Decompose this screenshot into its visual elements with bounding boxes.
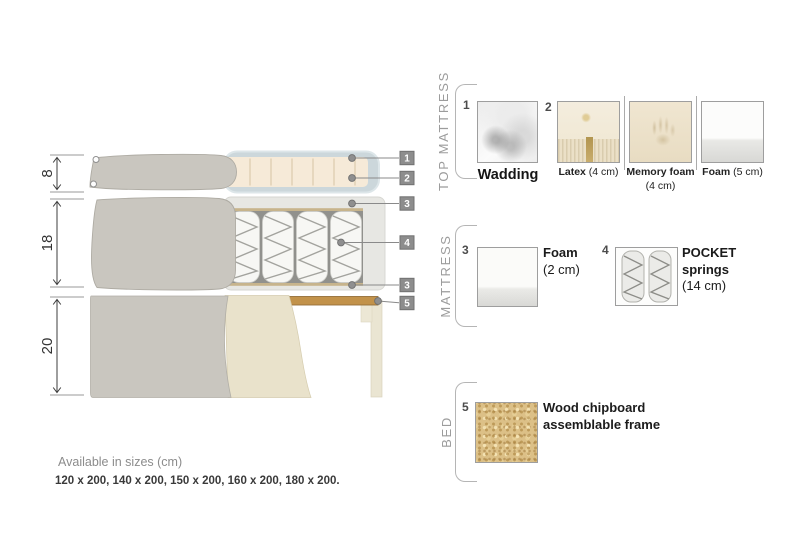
latex-caption-name: Latex <box>558 166 585 178</box>
mattress-cover <box>92 197 236 290</box>
legend-number-5: 5 <box>462 400 469 414</box>
tape-bottom <box>227 283 363 286</box>
foam5-caption: Foam (5 cm) <box>694 166 771 180</box>
pocket-springs-caption-size: (14 cm) <box>682 278 742 295</box>
pocket-spring <box>331 212 362 283</box>
wood-slat <box>288 297 378 306</box>
frame-tab <box>361 305 372 322</box>
legend-number-1: 1 <box>463 98 470 112</box>
cover-button-bottom <box>91 181 97 187</box>
bed-fabric-gray <box>91 296 232 398</box>
chipboard-image <box>475 402 538 463</box>
bed-construction-infographic: 8 18 20 <box>0 0 800 533</box>
pocket-springs-image <box>615 247 678 306</box>
foam5-image <box>701 101 764 163</box>
bracket-bed <box>455 382 477 482</box>
legend-number-2: 2 <box>545 100 552 114</box>
legend-number-3: 3 <box>462 243 469 257</box>
wadding-image <box>477 101 538 163</box>
callout-5-number: 5 <box>404 299 410 310</box>
pocket-spring <box>263 212 294 283</box>
frame-post <box>371 300 382 397</box>
foam5-caption-size: (5 cm) <box>730 166 763 178</box>
sizes-list: 120 x 200, 140 x 200, 150 x 200, 160 x 2… <box>55 475 340 487</box>
tape-top <box>227 208 363 211</box>
pocket-springs-caption-name: POCKET springs <box>682 245 736 277</box>
memory-foam-caption: Memory foam (4 cm) <box>626 166 695 193</box>
chipboard-caption: Wood chipboard assemblable frame <box>543 400 675 433</box>
latex-blocks <box>224 157 368 187</box>
foam2-image <box>477 247 538 307</box>
memory-foam-caption-size: (4 cm) <box>646 180 676 192</box>
dimension-8-label: 8 <box>39 169 56 177</box>
dimension-18-label: 18 <box>39 235 56 252</box>
group-title-top-mattress: TOP MATTRESS <box>436 61 452 201</box>
legend-divider-1 <box>624 96 625 170</box>
pocket-spring <box>297 212 328 283</box>
bed-section <box>91 296 383 398</box>
dimension-top-mattress: 8 <box>39 155 84 192</box>
latex-groove <box>586 137 593 162</box>
foam2-caption: Foam (2 cm) <box>543 245 598 278</box>
group-title-bed: BED <box>439 362 455 502</box>
legend-divider-2 <box>696 96 697 170</box>
group-title-mattress: MATTRESS <box>438 206 454 346</box>
wadding-caption-name: Wadding <box>478 167 539 183</box>
callout-4-number: 4 <box>404 238 410 249</box>
callout-2-number: 2 <box>404 174 410 185</box>
callout-3-number: 3 <box>404 199 410 210</box>
callout-3b-number: 3 <box>404 281 410 292</box>
legend-number-4: 4 <box>602 243 609 257</box>
foam2-caption-size: (2 cm) <box>543 262 598 279</box>
sizes-title: Available in sizes (cm) <box>58 455 182 469</box>
pocket-springs-glyph <box>616 248 677 305</box>
wadding-caption: Wadding <box>470 166 546 185</box>
dimension-20-label: 20 <box>39 338 56 355</box>
latex-caption-size: (4 cm) <box>586 166 619 178</box>
callout-1-number: 1 <box>404 154 410 165</box>
top-mattress-cover <box>90 154 237 189</box>
dimension-mattress: 18 <box>39 199 84 287</box>
bracket-mattress <box>455 225 477 327</box>
latex-caption: Latex (4 cm) <box>550 166 627 180</box>
memory-foam-image <box>629 101 692 163</box>
top-mattress-section <box>90 152 379 193</box>
memory-foam-caption-name: Memory foam <box>626 166 694 178</box>
latex-image <box>557 101 620 163</box>
bed-cross-section-diagram: 8 18 20 <box>0 0 800 533</box>
bed-fabric-drape <box>225 296 311 398</box>
dimension-bed: 20 <box>39 297 84 395</box>
pocket-springs-caption: POCKET springs (14 cm) <box>682 245 742 295</box>
foam5-caption-name: Foam <box>702 166 730 178</box>
cover-button-top <box>93 157 99 163</box>
foam2-caption-name: Foam <box>543 245 598 262</box>
